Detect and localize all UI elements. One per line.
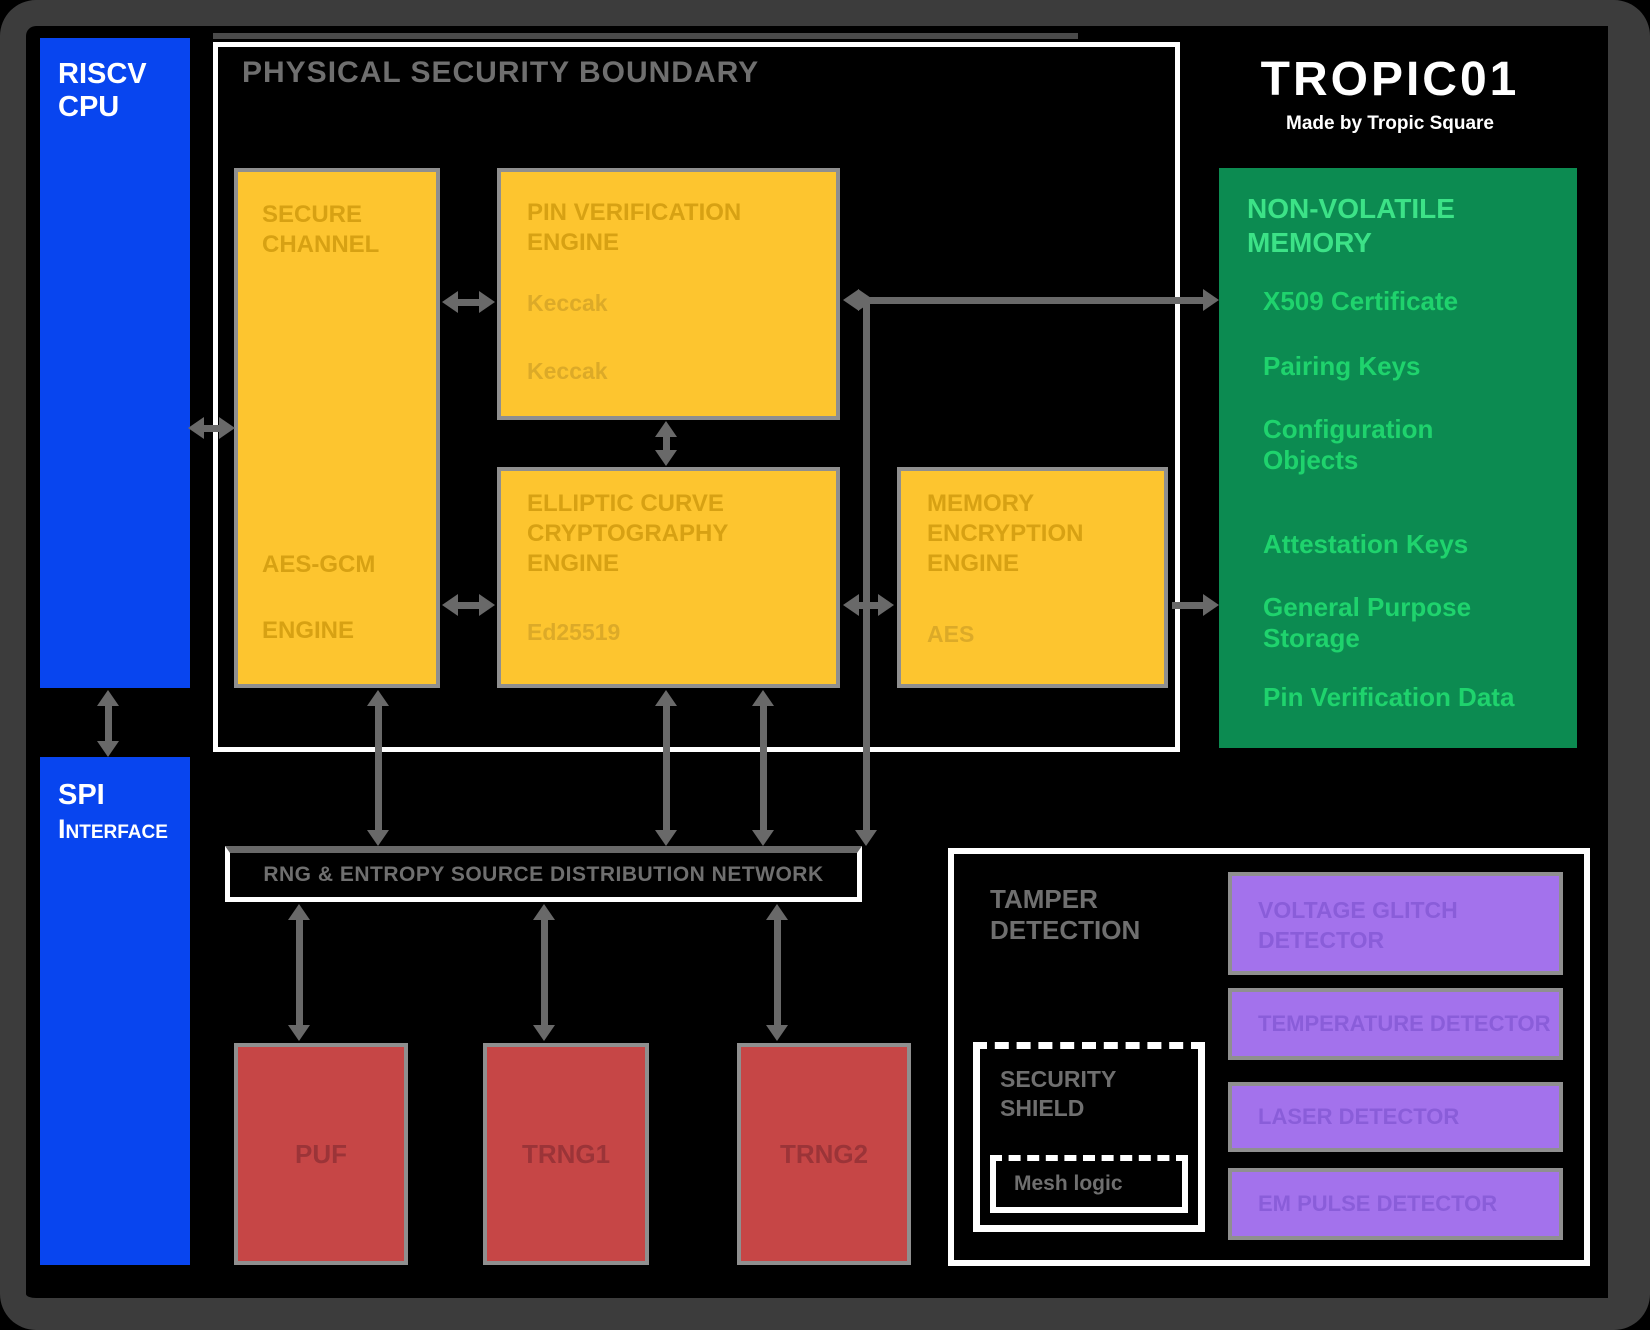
connector-line: [541, 917, 548, 1027]
arrowhead-icon: [533, 1025, 555, 1041]
connector-line: [774, 917, 781, 1027]
connector-line: [375, 703, 382, 832]
arrowhead-icon: [855, 830, 877, 846]
tropic01-logo: TROPIC01 Made by Tropic Square: [1190, 52, 1590, 135]
arrowhead-icon: [97, 741, 119, 757]
arrowhead-icon: [367, 830, 389, 846]
laser-detector-label: LASER DETECTOR: [1232, 1103, 1459, 1132]
pin-verification-engine-block: PIN VERIFICATION ENGINE Keccak Keccak: [497, 168, 840, 420]
voltage-glitch-detector-label: VOLTAGE GLITCH DETECTOR: [1232, 876, 1559, 956]
connector-line: [296, 917, 303, 1027]
temperature-detector-block: TEMPERATURE DETECTOR: [1228, 988, 1563, 1060]
aes-gcm-engine-label: ENGINE: [262, 616, 354, 646]
arrowhead-icon: [766, 1025, 788, 1041]
em-pulse-detector-block: EM PULSE DETECTOR: [1228, 1168, 1563, 1240]
mesh-logic-label: Mesh logic: [996, 1172, 1123, 1196]
connector-line: [856, 297, 1208, 304]
nvm-item-pin-verification-data: Pin Verification Data: [1263, 682, 1514, 713]
memory-encryption-engine-block: MEMORY ENCRYPTION ENGINE AES: [897, 467, 1168, 688]
nvm-item-attestation-keys: Attestation Keys: [1263, 529, 1468, 560]
tropic01-block-diagram: RISCV CPU SPI Interface PHYSICAL SECURIT…: [0, 0, 1650, 1330]
keccak-item-1: Keccak: [527, 290, 608, 317]
connector-line: [201, 425, 221, 432]
nvm-title: NON-VOLATILE MEMORY: [1219, 168, 1577, 259]
connector-line: [1172, 602, 1206, 609]
pin-verification-title: PIN VERIFICATION ENGINE: [501, 172, 836, 258]
trng1-label: TRNG1: [522, 1139, 610, 1170]
ed25519-item: Ed25519: [527, 619, 620, 646]
security-shield-label: SECURITY SHIELD: [980, 1049, 1198, 1123]
ecc-engine-title: ELLIPTIC CURVE CRYPTOGRAPHY ENGINE: [501, 471, 836, 579]
connector-line: [105, 703, 112, 743]
keccak-item-2: Keccak: [527, 358, 608, 385]
mesh-logic-box: Mesh logic: [990, 1155, 1188, 1213]
riscv-cpu-block: RISCV CPU: [40, 38, 190, 688]
arrowhead-icon: [219, 417, 235, 439]
arrowhead-icon: [288, 1025, 310, 1041]
connector-line: [760, 703, 767, 832]
connector-line: [663, 703, 670, 832]
logo-subtitle: Made by Tropic Square: [1190, 113, 1590, 135]
arrowhead-icon: [655, 830, 677, 846]
top-connector-line: [213, 33, 1078, 39]
trng2-block: TRNG2: [737, 1043, 911, 1265]
entropy-bus-bar: RNG & ENTROPY SOURCE DISTRIBUTION NETWOR…: [225, 846, 862, 902]
nvm-item-general-purpose-storage: General Purpose Storage: [1263, 592, 1471, 653]
temperature-detector-label: TEMPERATURE DETECTOR: [1232, 1010, 1551, 1039]
arrowhead-icon: [479, 594, 495, 616]
arrowhead-icon: [1203, 289, 1219, 311]
voltage-glitch-detector-block: VOLTAGE GLITCH DETECTOR: [1228, 872, 1563, 975]
secure-channel-title: SECURE CHANNEL: [238, 172, 436, 260]
tamper-detection-title: TAMPER DETECTION: [990, 884, 1210, 946]
spi-label: SPI: [40, 757, 190, 812]
logo-title: TROPIC01: [1190, 52, 1590, 107]
em-pulse-detector-label: EM PULSE DETECTOR: [1232, 1190, 1497, 1219]
nvm-item-pairing-keys: Pairing Keys: [1263, 351, 1421, 382]
ecc-engine-block: ELLIPTIC CURVE CRYPTOGRAPHY ENGINE Ed255…: [497, 467, 840, 688]
security-perimeter-title: PHYSICAL SECURITY BOUNDARY: [242, 56, 942, 90]
arrowhead-icon: [655, 450, 677, 466]
nvm-item-configuration-objects: Configuration Objects: [1263, 414, 1433, 475]
arrowhead-icon: [1203, 594, 1219, 616]
nvm-item-x509: X509 Certificate: [1263, 286, 1458, 317]
spi-interface-label: Interface: [40, 812, 190, 845]
non-volatile-memory-block: NON-VOLATILE MEMORY X509 Certificate Pai…: [1219, 168, 1577, 748]
entropy-bus-label: RNG & ENTROPY SOURCE DISTRIBUTION NETWOR…: [263, 863, 823, 887]
trng2-label: TRNG2: [780, 1139, 868, 1170]
riscv-cpu-label: RISCV CPU: [40, 38, 190, 125]
aes-item: AES: [927, 621, 974, 648]
connector-line: [863, 300, 870, 832]
laser-detector-block: LASER DETECTOR: [1228, 1082, 1563, 1152]
arrowhead-icon: [752, 830, 774, 846]
spi-interface-block: SPI Interface: [40, 757, 190, 1265]
aes-gcm-label: AES-GCM: [262, 550, 375, 580]
puf-block: PUF: [234, 1043, 408, 1265]
secure-channel-block: SECURE CHANNEL AES-GCM ENGINE: [234, 168, 440, 688]
memory-encryption-title: MEMORY ENCRYPTION ENGINE: [901, 471, 1164, 579]
arrowhead-icon: [479, 291, 495, 313]
puf-label: PUF: [295, 1139, 347, 1170]
trng1-block: TRNG1: [483, 1043, 649, 1265]
arrowhead-icon: [878, 594, 894, 616]
